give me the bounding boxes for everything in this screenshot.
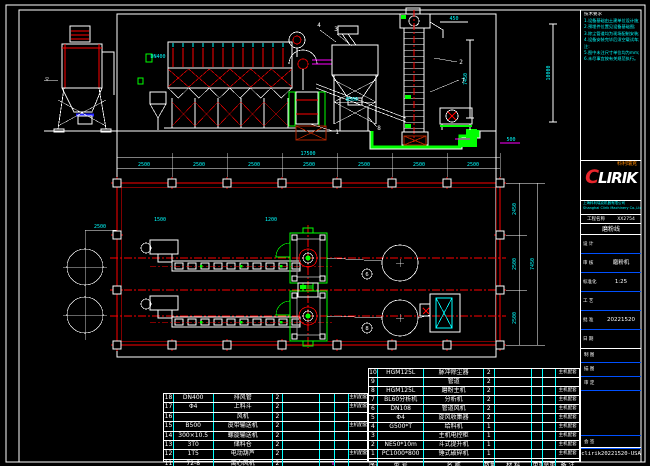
table-cell: 13 (164, 441, 174, 449)
table-cell (335, 441, 349, 449)
table-cell (532, 405, 543, 413)
small-cyclone (138, 54, 166, 130)
table-cell (335, 413, 349, 421)
dim-label: 2500 (467, 162, 479, 168)
table-cell: G500*T (378, 423, 425, 431)
table-cell: 风机 (214, 413, 273, 421)
table-cell (532, 369, 543, 377)
table-cell: 给料机 (424, 423, 483, 431)
dim-label: 2500 (94, 224, 106, 230)
table-row: 18DN400排风管2主机配套1# (164, 394, 367, 402)
plan-silos (327, 245, 418, 336)
dim-label: 450 (449, 16, 458, 22)
table-cell: 3T0 (174, 441, 214, 449)
table-cell (320, 394, 335, 402)
table-cell: B500 (174, 422, 214, 430)
bom-header-cell: 备 注 (556, 459, 579, 466)
titleblock-value: 1:25 (601, 273, 641, 291)
dim-label: 1200 (265, 217, 277, 223)
table-cell: 8 (369, 387, 378, 395)
table-cell: 2 (484, 405, 495, 413)
dim-label: 7450 (530, 258, 536, 270)
titleblock-label: 批 准 (581, 311, 601, 329)
titleblock-label: 标准化 (581, 273, 601, 291)
table-cell: 主机配套1# (349, 403, 367, 411)
balloon-number: 1 (335, 129, 339, 136)
table-cell (335, 460, 349, 466)
table-cell: 斗式提升机 (424, 441, 483, 449)
table-cell: 9 (369, 378, 378, 386)
baghouse (164, 42, 296, 128)
table-cell: 72-8 (174, 460, 214, 466)
table-row: 4G500*T给料机1主机配套 (369, 422, 579, 431)
table-cell (543, 423, 556, 431)
table-cell: 离心风机 (214, 460, 273, 466)
note-line: 2.预埋件位置见设备基础图; (584, 24, 639, 30)
project-label: 工程名称 (581, 215, 611, 223)
table-cell: 2 (484, 378, 495, 386)
project-row: 工程名称 XX2754 (581, 214, 641, 223)
table-cell: 1 (369, 450, 378, 458)
table-cell: 2 (484, 369, 495, 377)
table-cell: 储料仓 (214, 441, 273, 449)
table-cell: 主机配套 (349, 450, 367, 458)
table-cell (495, 369, 533, 377)
elevation-dimensions (440, 22, 557, 143)
table-cell: 主机配套 (556, 450, 579, 458)
table-cell (543, 414, 556, 422)
bom-header-row: 序号型 号名 称数量材 料单重总重备 注 (369, 458, 579, 466)
table-row: 8HGM125L磨粉主机2主机配套 (369, 386, 579, 395)
balloon-number: 7 (461, 78, 465, 85)
bom-header-cell: 材 料 (495, 459, 533, 466)
table-cell (283, 441, 321, 449)
table-cell: 皮带输送机 (214, 422, 273, 430)
table-cell: 管道风机 (424, 405, 483, 413)
table-row: 3主机电控柜1主机配套 (369, 431, 579, 440)
table-row: 14300×10.5螺旋输送机2 (164, 431, 367, 440)
bom-table-left: 18DN400排风管2主机配套1#17Φ4上料斗2主机配套1#16风机215B5… (163, 393, 368, 462)
titleblock-label: 设 计 (581, 235, 601, 253)
dim-label: 2500 (413, 162, 425, 168)
balloon-number: 8 (377, 125, 381, 132)
table-cell: 2 (273, 394, 283, 402)
bom-header-cell: 单重 (532, 459, 543, 466)
table-cell (335, 403, 349, 411)
titleblock-row: 批 准20221520 (581, 311, 641, 330)
table-cell (543, 369, 556, 377)
document-number: clirik20221520-USA (581, 447, 641, 462)
table-cell (283, 460, 321, 466)
balloon-number: 6 (365, 272, 368, 278)
table-cell: 4 (369, 423, 378, 431)
balloon-number: 4 (317, 22, 321, 29)
table-row: 5Φ4旋风收集器2主机配套 (369, 413, 579, 422)
table-cell (532, 432, 543, 440)
outdoor-silos (63, 230, 117, 340)
table-cell: 300×10.5 (174, 432, 214, 440)
table-cell: 上料斗 (214, 403, 273, 411)
dim-label: 2500 (358, 162, 370, 168)
product-name: 磨粉线 (581, 223, 641, 234)
table-cell: 18 (164, 394, 174, 402)
table-cell: 1 (484, 450, 495, 458)
table-cell (495, 441, 533, 449)
table-cell: 2 (273, 450, 283, 458)
table-cell: 16 (164, 413, 174, 421)
table-cell (543, 450, 556, 458)
table-cell (556, 378, 579, 386)
table-cell (349, 432, 367, 440)
hopper-bin (332, 26, 378, 124)
balloon-number: 2 (459, 59, 463, 66)
table-cell (495, 432, 533, 440)
table-cell: 锤式破碎机 (424, 450, 483, 458)
table-cell (320, 403, 335, 411)
inclined-conveyor (316, 84, 406, 131)
logo-wordmark: LIRIK (598, 169, 637, 187)
table-cell: 2 (273, 460, 283, 466)
titleblock-row: 设 计 (581, 235, 641, 254)
table-cell: 1 (484, 432, 495, 440)
project-code: XX2754 (611, 215, 641, 223)
title-block: 技术要求 1.设备基础由土建单位设计施工;2.预埋件位置见设备基础图;3.除尘管… (580, 10, 641, 462)
titleblock-value (601, 292, 641, 310)
table-cell: 主机配套 (556, 396, 579, 404)
dim-label: 2450 (512, 203, 518, 215)
bom-header-cell: 序号 (369, 459, 378, 466)
table-cell (495, 405, 533, 413)
table-cell: 2 (273, 403, 283, 411)
titleblock-rows: 设 计审 核磨粉机标准化1:25工 艺批 准20221520日 期 (581, 234, 641, 348)
table-cell: 10 (369, 369, 378, 377)
balloon-number: 3 (334, 26, 338, 33)
table-cell: BL60分析机 (378, 396, 425, 404)
table-cell: 17 (164, 403, 174, 411)
titleblock-row: 描 图 (581, 363, 641, 377)
table-cell: 6 (369, 405, 378, 413)
plan-view (63, 153, 545, 351)
table-cell: 主机配套 (556, 441, 579, 449)
table-cell: PC1000*800 (378, 450, 425, 458)
table-row: 1PC1000*800锤式破碎机1主机配套 (369, 449, 579, 458)
table-cell (532, 378, 543, 386)
cyclone-collector (44, 26, 114, 132)
table-cell (532, 423, 543, 431)
table-cell: 主机配套1# (349, 394, 367, 402)
table-cell (495, 423, 533, 431)
bom-table-right: 10HGM125L脉冲除尘器2主机配套9管道28HGM125L磨粉主机2主机配套… (368, 368, 580, 462)
titleblock-label: 审 核 (581, 254, 601, 272)
dim-label: DN400 (150, 54, 165, 60)
table-cell (349, 460, 367, 466)
table-cell: HGM125L (378, 369, 425, 377)
table-cell: 2 (369, 441, 378, 449)
table-row: 2NE50*10m斗式提升机1主机配套 (369, 440, 579, 449)
table-row: 7BL60分析机分析机2主机配套 (369, 395, 579, 404)
table-cell (283, 413, 321, 421)
titleblock-row: 日 期 (581, 330, 641, 349)
table-cell: 电动葫芦 (214, 450, 273, 458)
table-cell: 螺旋输送机 (214, 432, 273, 440)
table-cell (495, 378, 533, 386)
dim-label: ▽ (45, 76, 49, 83)
dim-label: B500 (346, 97, 358, 103)
note-line: 6.未尽事宜按有关规范执行。 (584, 56, 639, 62)
bom-header-cell: 数量 (484, 459, 495, 466)
table-cell: DN400 (174, 394, 214, 402)
titleblock-row: 标准化1:25 (581, 273, 641, 292)
table-cell (320, 432, 335, 440)
table-cell: 主机配套 (556, 423, 579, 431)
dim-label: 1500 (154, 217, 166, 223)
logo-c-mark: C (585, 166, 598, 188)
table-cell: 脉冲除尘器 (424, 369, 483, 377)
table-cell: Φ4 (378, 414, 425, 422)
table-cell (495, 387, 533, 395)
table-cell (532, 387, 543, 395)
table-cell (532, 450, 543, 458)
table-row: 121T5电动葫芦2主机配套 (164, 449, 367, 458)
pit (370, 129, 496, 149)
table-cell (543, 405, 556, 413)
table-cell: 管道 (424, 378, 483, 386)
bom-header-cell: 总重 (543, 459, 556, 466)
dim-label: 500 (506, 137, 515, 143)
table-cell: 磨粉主机 (424, 387, 483, 395)
table-cell (495, 450, 533, 458)
table-cell (532, 414, 543, 422)
table-cell (335, 432, 349, 440)
titleblock-row: 审 核磨粉机 (581, 254, 641, 273)
table-cell: 7 (369, 396, 378, 404)
table-row: 17Φ4上料斗2主机配套1# (164, 402, 367, 411)
table-cell (174, 413, 214, 421)
table-cell (283, 394, 321, 402)
table-cell: 主机配套 (556, 414, 579, 422)
titleblock-value: 20221520 (601, 311, 641, 329)
table-cell (495, 396, 533, 404)
balloon-callouts: 18273468 (317, 22, 465, 333)
table-cell (543, 396, 556, 404)
dim-label: 2500 (512, 258, 518, 270)
company-address: 上海科利瑞克机器有限公司 Shanghai Clirik Machinery C… (581, 200, 641, 214)
titleblock-value: 磨粉机 (601, 254, 641, 272)
table-cell: 2 (484, 387, 495, 395)
logo-box: 科利瑞克 CLIRIK (581, 160, 641, 200)
titleblock-label: 工 艺 (581, 292, 601, 310)
table-cell: 14 (164, 432, 174, 440)
table-row: 9管道2 (369, 377, 579, 386)
table-cell: 11 (164, 460, 174, 466)
titleblock-row: 制 图 (581, 349, 641, 363)
feeder-machine (440, 108, 472, 130)
bom-header-cell: 名 称 (424, 459, 483, 466)
bucket-elevator (400, 8, 443, 145)
table-cell: 主机电控柜 (424, 432, 483, 440)
table-cell: 主机配套 (556, 387, 579, 395)
table-cell (283, 422, 321, 430)
table-cell: DN108 (378, 405, 425, 413)
titleblock-lower: 制 图描 图审 定 会 签 clirik20221520-USA (581, 348, 641, 462)
table-cell (532, 396, 543, 404)
address-line2: Shanghai Clirik Machinery Co.,Ltd (583, 206, 641, 211)
table-cell (543, 378, 556, 386)
table-cell (378, 432, 425, 440)
table-row: 10HGM125L脉冲除尘器2主机配套 (369, 369, 579, 377)
table-row: 6DN108管道风机2主机配套 (369, 404, 579, 413)
table-cell (283, 432, 321, 440)
notes-section: 技术要求 1.设备基础由土建单位设计施工;2.预埋件位置见设备基础图;3.除尘管… (581, 10, 641, 160)
axis-lines (110, 225, 506, 348)
bom-header-cell: 型 号 (378, 459, 425, 466)
table-cell: 12 (164, 450, 174, 458)
elevator-plan-symbol (418, 294, 460, 332)
table-cell (283, 450, 321, 458)
drawing-sheet: 2500250025002500250025002500175002450250… (0, 0, 650, 466)
table-cell: 15 (164, 422, 174, 430)
table-cell (543, 441, 556, 449)
table-cell (543, 432, 556, 440)
grinding-mill-elevation (289, 32, 332, 140)
table-cell: 5 (369, 414, 378, 422)
table-cell: 2 (273, 422, 283, 430)
table-cell (543, 387, 556, 395)
table-cell (378, 378, 425, 386)
table-cell: 1T5 (174, 450, 214, 458)
table-cell (320, 441, 335, 449)
table-cell (349, 441, 367, 449)
table-cell (283, 403, 321, 411)
titleblock-value (601, 330, 641, 349)
titleblock-row: 审 定 (581, 377, 641, 391)
table-cell: HGM125L (378, 387, 425, 395)
table-cell: Φ4 (174, 403, 214, 411)
dim-label: 17500 (300, 151, 315, 157)
table-cell: 2 (273, 413, 283, 421)
table-cell: 2 (484, 414, 495, 422)
table-cell (532, 441, 543, 449)
table-cell (320, 450, 335, 458)
table-cell: NE50*10m (378, 441, 425, 449)
dim-label: 2500 (512, 312, 518, 324)
titleblock-value (601, 235, 641, 253)
table-cell: 2 (273, 441, 283, 449)
titleblock-label: 日 期 (581, 330, 601, 349)
dim-label: 2500 (138, 162, 150, 168)
table-cell (320, 413, 335, 421)
table-row: 15B500皮带输送机2主机配套 (164, 421, 367, 430)
dim-label: 2500 (248, 162, 260, 168)
table-row: 133T0储料仓2 (164, 440, 367, 449)
table-cell: 2 (484, 396, 495, 404)
table-cell (335, 450, 349, 458)
dim-label: 2500 (303, 162, 315, 168)
table-cell: 排风管 (214, 394, 273, 402)
dim-label: 10000 (546, 65, 552, 80)
table-cell: 主机配套 (556, 405, 579, 413)
table-cell: 主机配套 (556, 369, 579, 377)
signature-space (581, 391, 641, 435)
note-line: 4.设备安装完毕后须空载试车; (584, 37, 639, 43)
table-cell: 主机配套 (556, 432, 579, 440)
table-cell: 分析机 (424, 396, 483, 404)
clirik-logo: CLIRIK (581, 167, 641, 188)
table-cell (495, 414, 533, 422)
table-cell (320, 422, 335, 430)
table-cell: 1 (484, 423, 495, 431)
table-row: 16风机2 (164, 412, 367, 421)
table-cell (335, 394, 349, 402)
balloon-number: 8 (365, 326, 368, 332)
table-cell: 旋风收集器 (424, 414, 483, 422)
table-cell: 2 (273, 432, 283, 440)
table-cell (320, 460, 335, 466)
table-cell: 1 (484, 441, 495, 449)
table-cell: 3 (369, 432, 378, 440)
table-cell: 主机配套 (349, 422, 367, 430)
dim-label: 2500 (193, 162, 205, 168)
table-row: 1172-8离心风机2 (164, 459, 367, 466)
titleblock-row: 工 艺 (581, 292, 641, 311)
table-cell (349, 413, 367, 421)
table-cell (335, 422, 349, 430)
